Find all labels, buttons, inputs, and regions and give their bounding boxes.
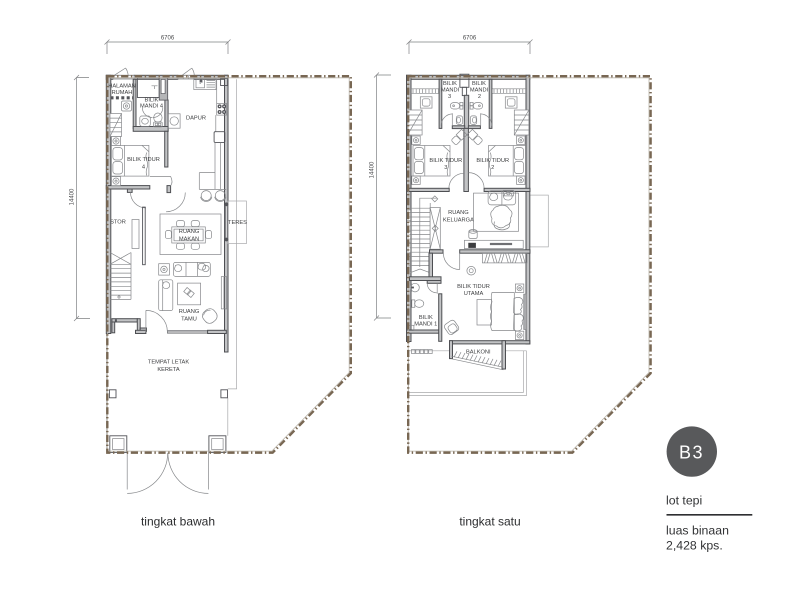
svg-text:BILIK: BILIK [443,81,457,87]
svg-text:RUANG: RUANG [179,309,200,315]
svg-text:tingkat satu: tingkat satu [459,515,520,529]
svg-text:MANDI 1: MANDI 1 [414,322,437,328]
svg-text:6706: 6706 [463,36,477,42]
svg-text:MAKAN: MAKAN [179,237,199,243]
svg-text:BILIK: BILIK [145,97,159,103]
svg-text:14400: 14400 [70,188,76,205]
svg-text:luas binaan: luas binaan [666,523,729,537]
svg-text:BALKONI: BALKONI [466,350,491,356]
svg-text:TERES: TERES [228,220,247,226]
svg-text:2: 2 [478,94,481,100]
svg-text:3: 3 [444,165,447,171]
svg-text:2: 2 [491,165,494,171]
svg-text:BILIK: BILIK [472,81,486,87]
svg-text:KERETA: KERETA [157,367,180,373]
svg-text:KELUARGA: KELUARGA [443,218,474,224]
svg-text:STOR: STOR [110,220,126,226]
svg-text:BILIK TIDUR: BILIK TIDUR [429,158,462,164]
svg-text:RUANG: RUANG [179,229,200,235]
svg-text:14400: 14400 [370,161,376,178]
svg-text:RUMAH: RUMAH [112,90,133,96]
svg-text:2,428 kps.: 2,428 kps. [666,538,723,552]
svg-text:BILIK TIDUR: BILIK TIDUR [476,158,509,164]
svg-text:tingkat bawah: tingkat bawah [141,515,215,529]
svg-text:BILIK TIDUR: BILIK TIDUR [457,284,490,290]
svg-text:4: 4 [142,164,145,170]
svg-text:3: 3 [448,94,451,100]
svg-text:UTAMA: UTAMA [464,291,484,297]
svg-text:MANDI 4: MANDI 4 [140,104,163,110]
svg-text:HALAMAN: HALAMAN [108,84,136,90]
svg-text:lot tepi: lot tepi [666,494,702,508]
svg-text:6706: 6706 [161,36,175,42]
svg-text:RUANG: RUANG [448,210,469,216]
svg-text:TEMPAT LETAK: TEMPAT LETAK [148,360,189,366]
svg-text:B3: B3 [679,442,704,462]
svg-text:TAMU: TAMU [181,316,197,322]
svg-text:BILIK: BILIK [419,315,433,321]
svg-text:BILIK TIDUR: BILIK TIDUR [127,157,160,163]
svg-text:DAPUR: DAPUR [186,116,206,122]
svg-text:MANDI: MANDI [470,88,489,94]
svg-text:MANDI: MANDI [441,88,460,94]
